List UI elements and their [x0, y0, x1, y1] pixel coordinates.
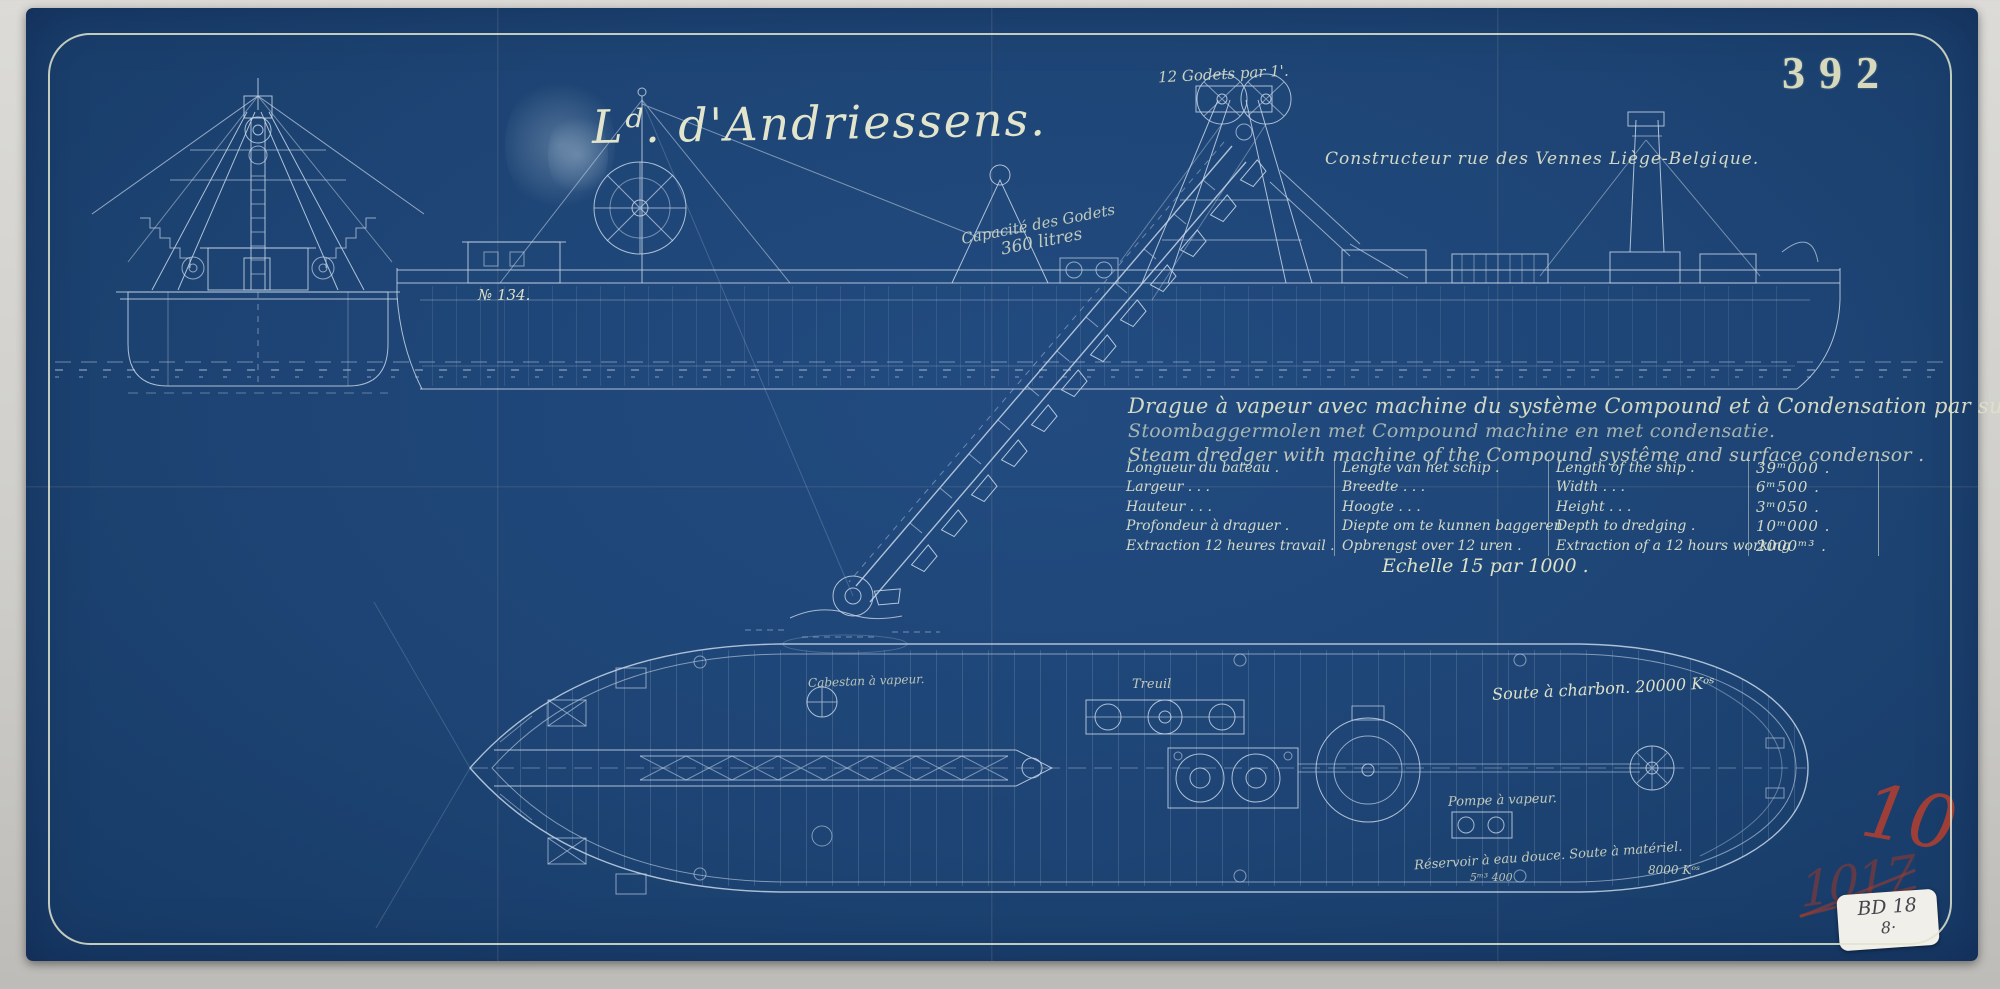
spec-value: 10ᵐ000 .	[1748, 517, 1878, 536]
winch-label: Treuil	[1132, 678, 1171, 692]
spec-fr: Profondeur à draguer .	[1126, 517, 1334, 536]
spec-nl: Hoogte . . .	[1334, 498, 1548, 517]
description-block: Drague à vapeur avec machine du système …	[1128, 395, 1928, 466]
spec-en: Width . . .	[1548, 478, 1748, 497]
spec-nl: Diepte om te kunnen baggeren	[1334, 517, 1548, 536]
spec-value: 3ᵐ050 .	[1748, 498, 1878, 517]
description-dutch: Stoombaggermolen met Compound machine en…	[1128, 421, 1928, 442]
spec-table: Longueur du bateau . Lengte van het schi…	[1126, 459, 1879, 556]
spec-fr: Longueur du bateau .	[1126, 459, 1334, 478]
spec-fr: Extraction 12 heures travail .	[1126, 537, 1334, 556]
spec-fr: Hauteur . . .	[1126, 498, 1334, 517]
plan-view-drawing	[374, 602, 1808, 928]
front-elevation-drawing	[92, 78, 424, 393]
hull-number-label: № 134.	[478, 287, 530, 304]
reservoir-volume-label: 5ᵐ³ 400	[1470, 872, 1513, 884]
spec-value: 39ᵐ000 .	[1748, 459, 1878, 478]
material-weight-label: 8000 Kᵒˢ	[1648, 864, 1700, 877]
builder-line: Constructeur rue des Vennes Liège-Belgiq…	[1325, 150, 1759, 169]
description-french: Drague à vapeur avec machine du système …	[1128, 395, 1928, 418]
spec-en: Length of the ship .	[1548, 459, 1748, 478]
spec-fr: Largeur . . .	[1126, 478, 1334, 497]
spec-nl: Breedte . . .	[1334, 478, 1548, 497]
archive-sticker: BD 18 8·	[1836, 889, 1940, 952]
spec-value: 2000ᵐ³ .	[1748, 537, 1878, 556]
scale-note: Echelle 15 par 1000 .	[1382, 556, 1589, 577]
page-title: Lᵈ. d'Andriessens.	[592, 94, 1048, 153]
spec-nl: Opbrengst over 12 uren .	[1334, 537, 1548, 556]
spec-value: 6ᵐ500 .	[1748, 478, 1878, 497]
drawing-number: 392	[1782, 48, 1893, 99]
spec-en: Height . . .	[1548, 498, 1748, 517]
spec-nl: Lengte van het schip .	[1334, 459, 1548, 478]
spec-en: Depth to dredging .	[1548, 517, 1748, 536]
blueprint-scan: 392 Lᵈ. d'Andriessens. Constructeur rue …	[0, 0, 2000, 989]
spec-en: Extraction of a 12 hours working	[1548, 537, 1748, 556]
